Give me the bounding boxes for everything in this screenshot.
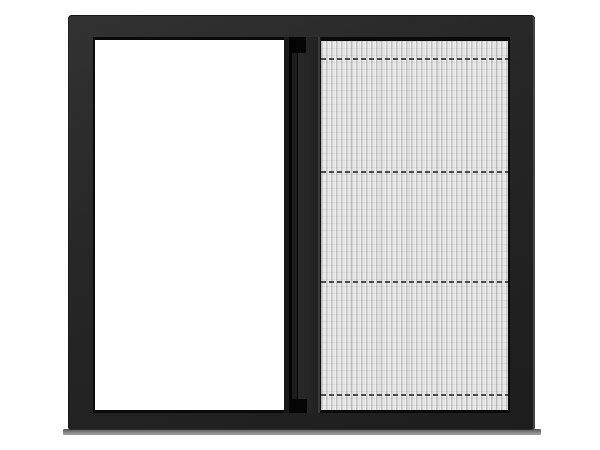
- tension-cord: [321, 394, 508, 396]
- window-frame: [68, 15, 535, 430]
- tension-cord: [321, 281, 508, 283]
- pleated-screen: [321, 37, 510, 413]
- rail-notch-bottom: [289, 399, 307, 413]
- rail-notch-top: [292, 37, 306, 53]
- product-photo-canvas: [0, 0, 600, 450]
- tension-cord: [321, 171, 508, 173]
- center-rail: [284, 37, 321, 413]
- open-pane: [93, 37, 284, 413]
- tension-cords: [321, 37, 508, 413]
- screen-handle-bar: [298, 37, 318, 413]
- tension-cord: [321, 58, 508, 60]
